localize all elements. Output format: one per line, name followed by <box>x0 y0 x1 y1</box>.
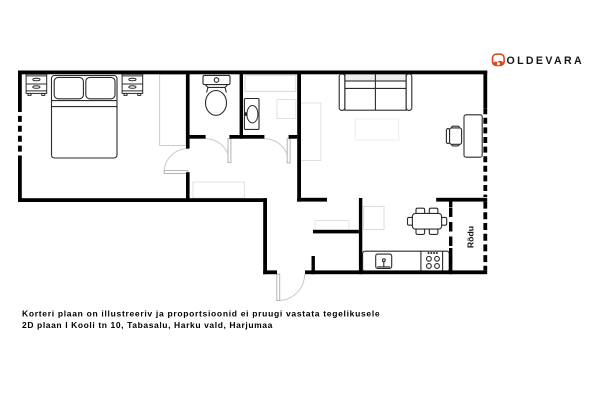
svg-text:Rõdu: Rõdu <box>465 226 475 248</box>
svg-text:OLDEVARA: OLDEVARA <box>507 55 584 67</box>
svg-text:Korteri plaan on illustreeriv: Korteri plaan on illustreeriv ja proport… <box>22 308 380 318</box>
svg-text:2D plaan I Kooli tn 10, Tabasa: 2D plaan I Kooli tn 10, Tabasalu, Harku … <box>22 320 273 330</box>
